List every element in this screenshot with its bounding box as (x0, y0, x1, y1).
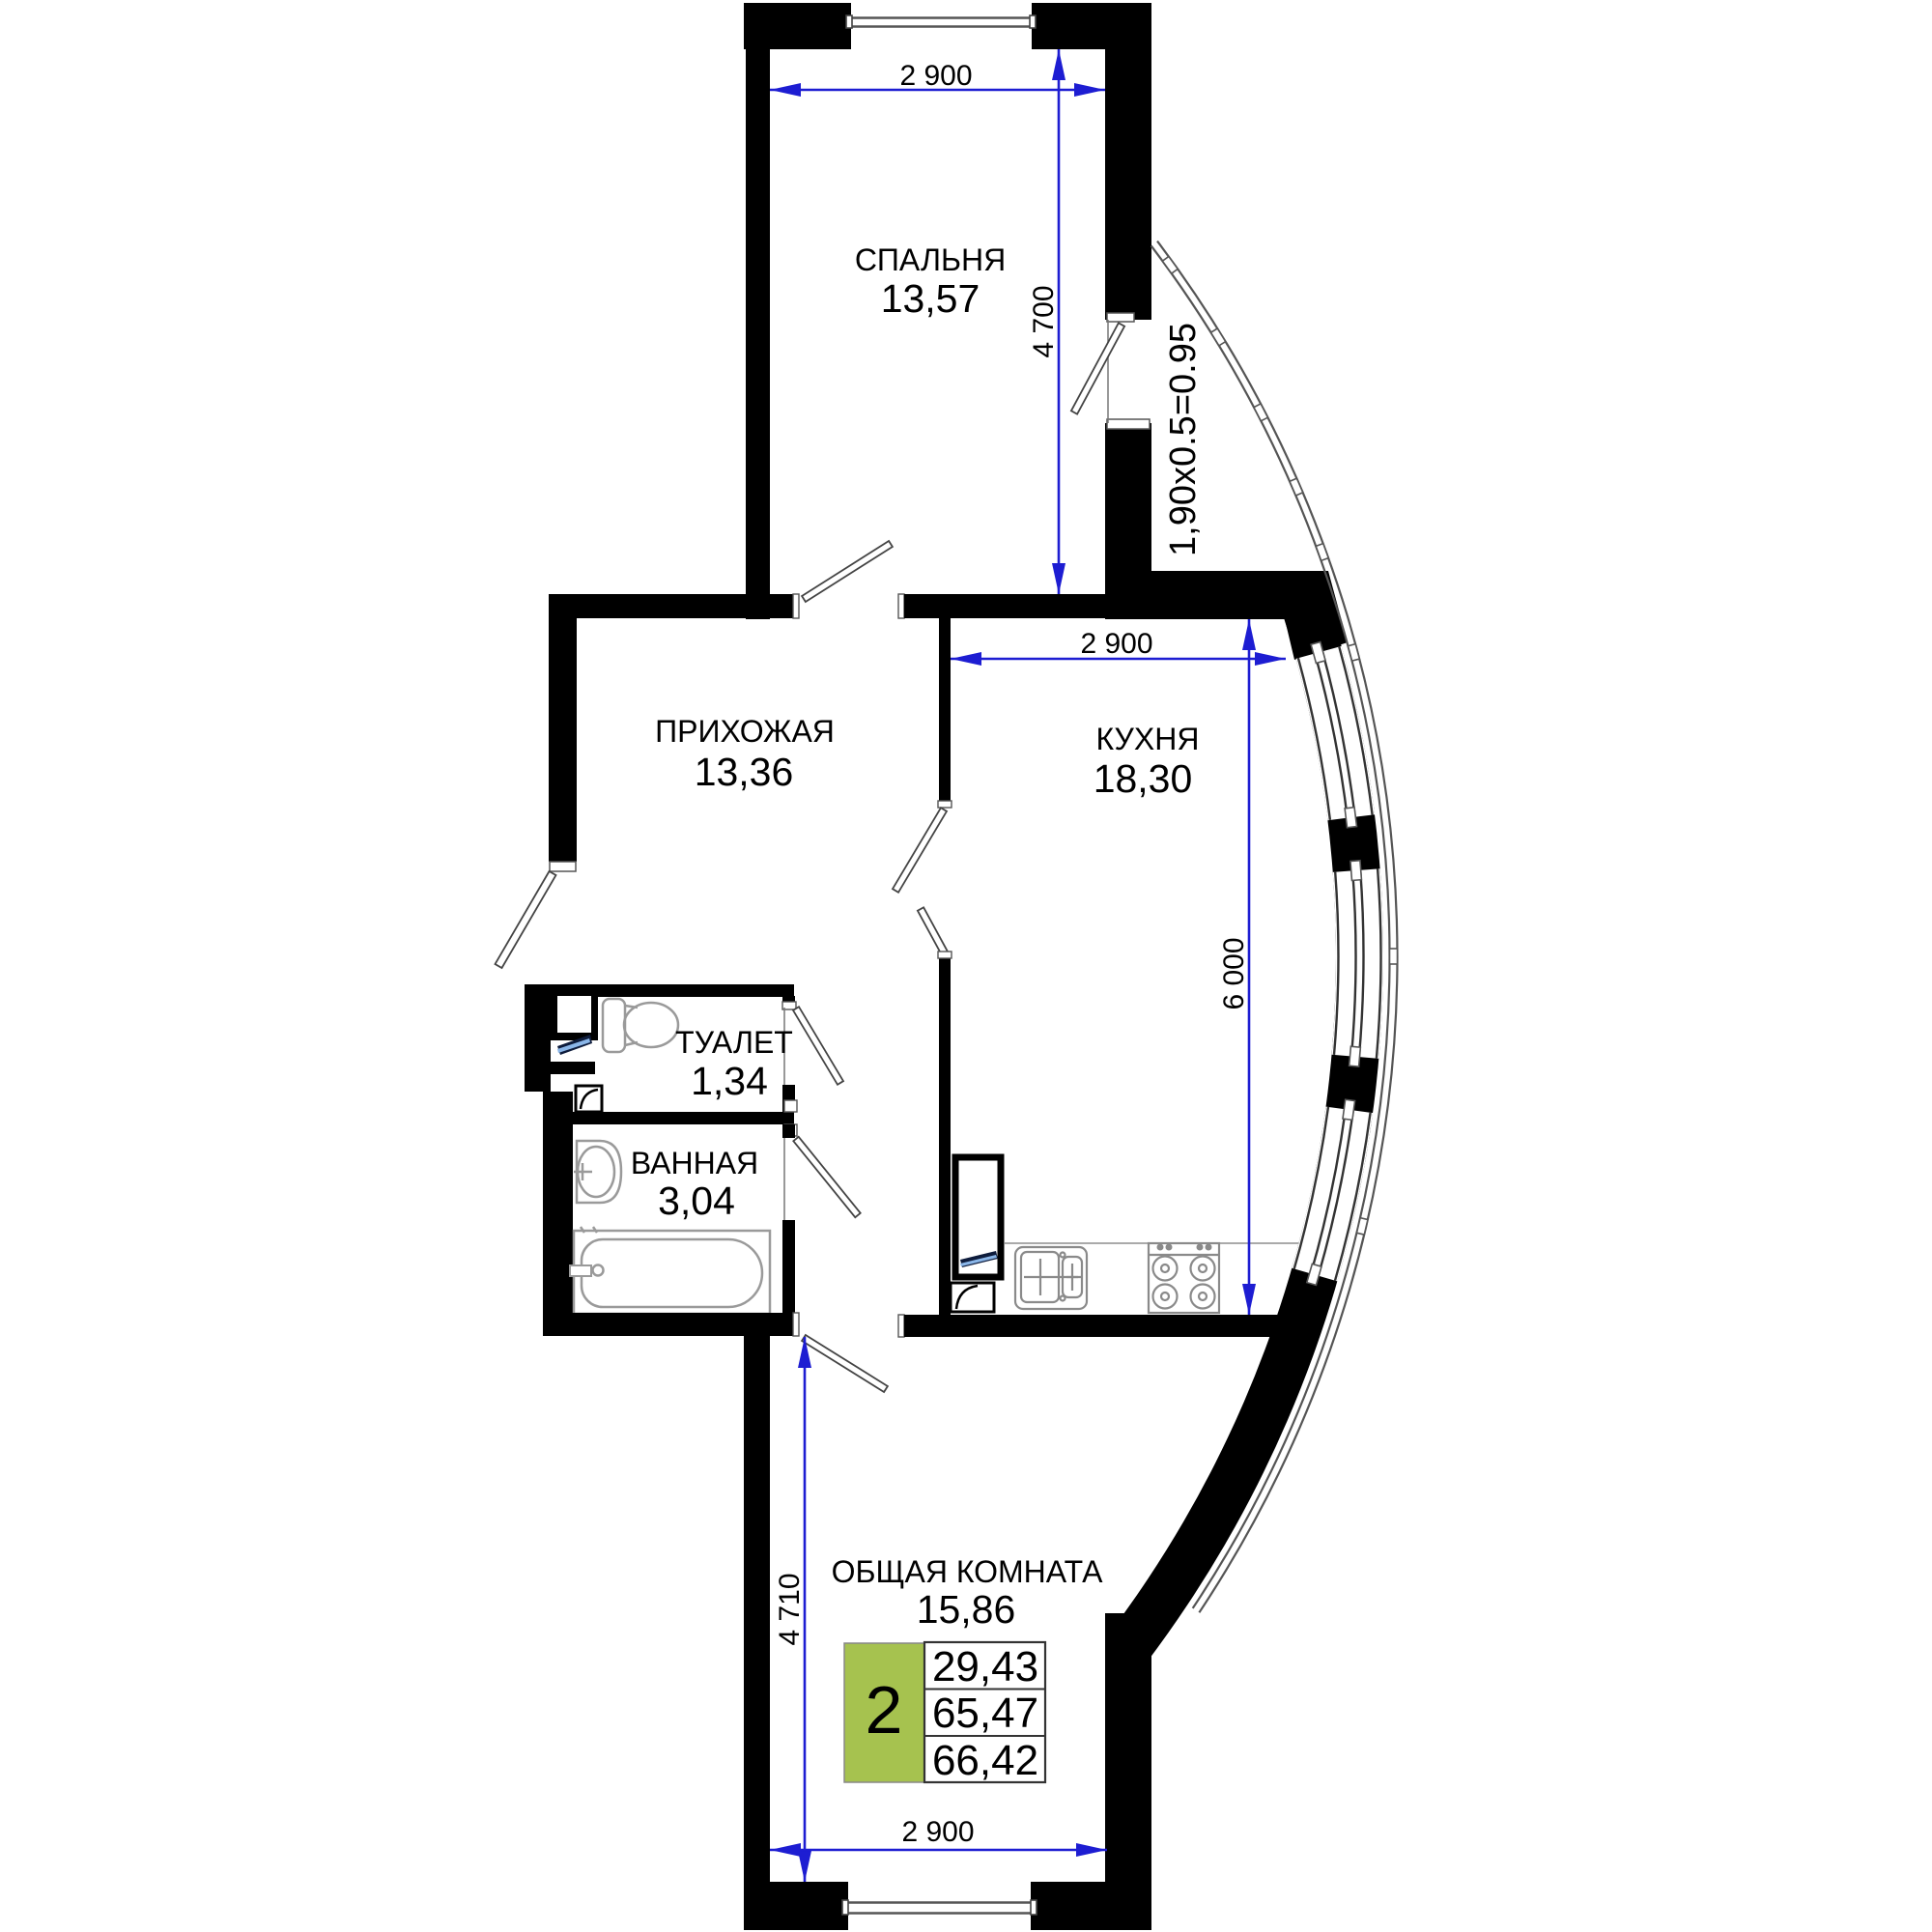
svg-text:4 700: 4 700 (1028, 285, 1060, 357)
svg-text:4 710: 4 710 (774, 1573, 806, 1645)
svg-text:18,30: 18,30 (1094, 756, 1193, 801)
svg-text:2: 2 (866, 1672, 903, 1747)
svg-text:3,04: 3,04 (658, 1179, 735, 1223)
svg-text:1,34: 1,34 (691, 1059, 768, 1103)
svg-text:1,90x0.5=0.95: 1,90x0.5=0.95 (1163, 323, 1204, 556)
svg-text:6 000: 6 000 (1218, 937, 1250, 1009)
svg-text:15,86: 15,86 (917, 1587, 1016, 1632)
svg-text:ТУАЛЕТ: ТУАЛЕТ (675, 1025, 793, 1060)
svg-text:66,42: 66,42 (932, 1737, 1038, 1784)
svg-text:13,57: 13,57 (881, 276, 980, 321)
svg-text:65,47: 65,47 (932, 1690, 1038, 1737)
svg-text:2 900: 2 900 (901, 1816, 974, 1848)
svg-text:2 900: 2 900 (899, 60, 972, 92)
svg-text:2 900: 2 900 (1080, 628, 1152, 660)
svg-text:29,43: 29,43 (932, 1643, 1038, 1690)
svg-text:ПРИХОЖАЯ: ПРИХОЖАЯ (655, 714, 835, 749)
svg-text:13,36: 13,36 (695, 750, 794, 794)
svg-text:КУХНЯ: КУХНЯ (1096, 722, 1200, 756)
svg-text:СПАЛЬНЯ: СПАЛЬНЯ (855, 242, 1006, 277)
svg-text:ОБЩАЯ КОМНАТА: ОБЩАЯ КОМНАТА (832, 1554, 1104, 1589)
svg-text:ВАННАЯ: ВАННАЯ (631, 1146, 758, 1180)
